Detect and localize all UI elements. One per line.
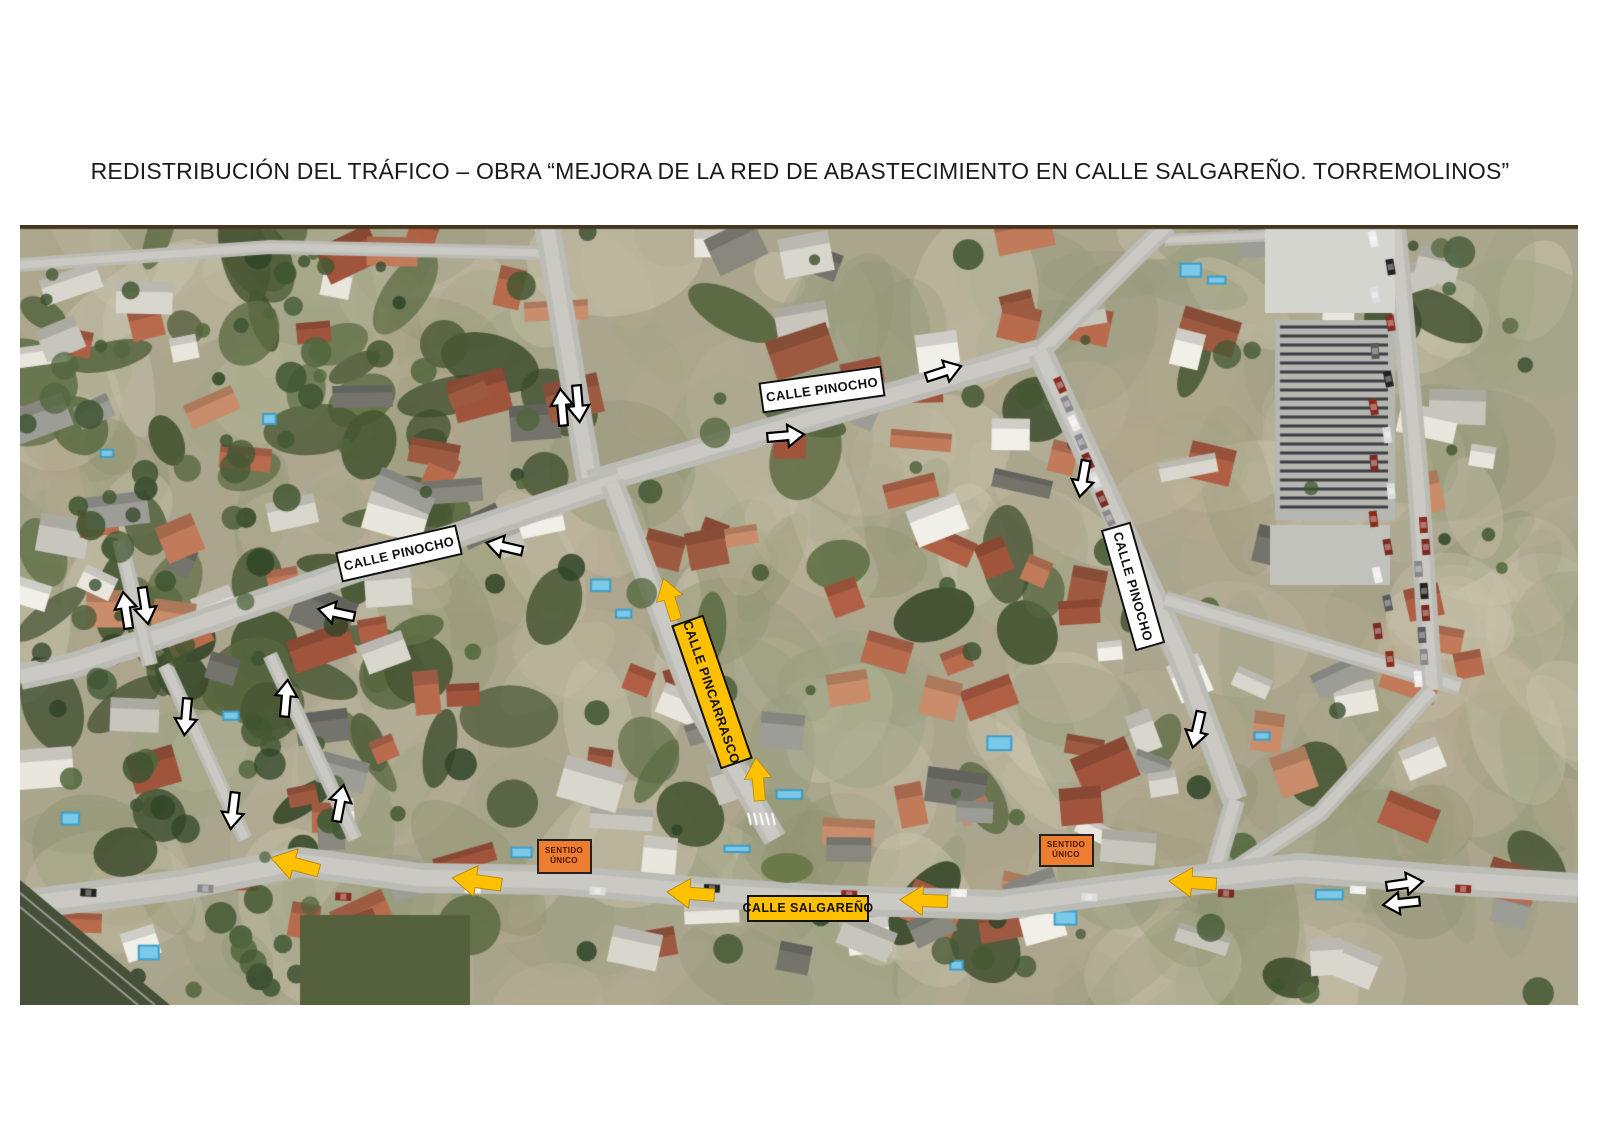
aerial-photo-canvas <box>20 225 1578 1005</box>
page-title: REDISTRIBUCIÓN DEL TRÁFICO – OBRA “MEJOR… <box>0 158 1600 185</box>
satellite-map <box>20 225 1578 1005</box>
